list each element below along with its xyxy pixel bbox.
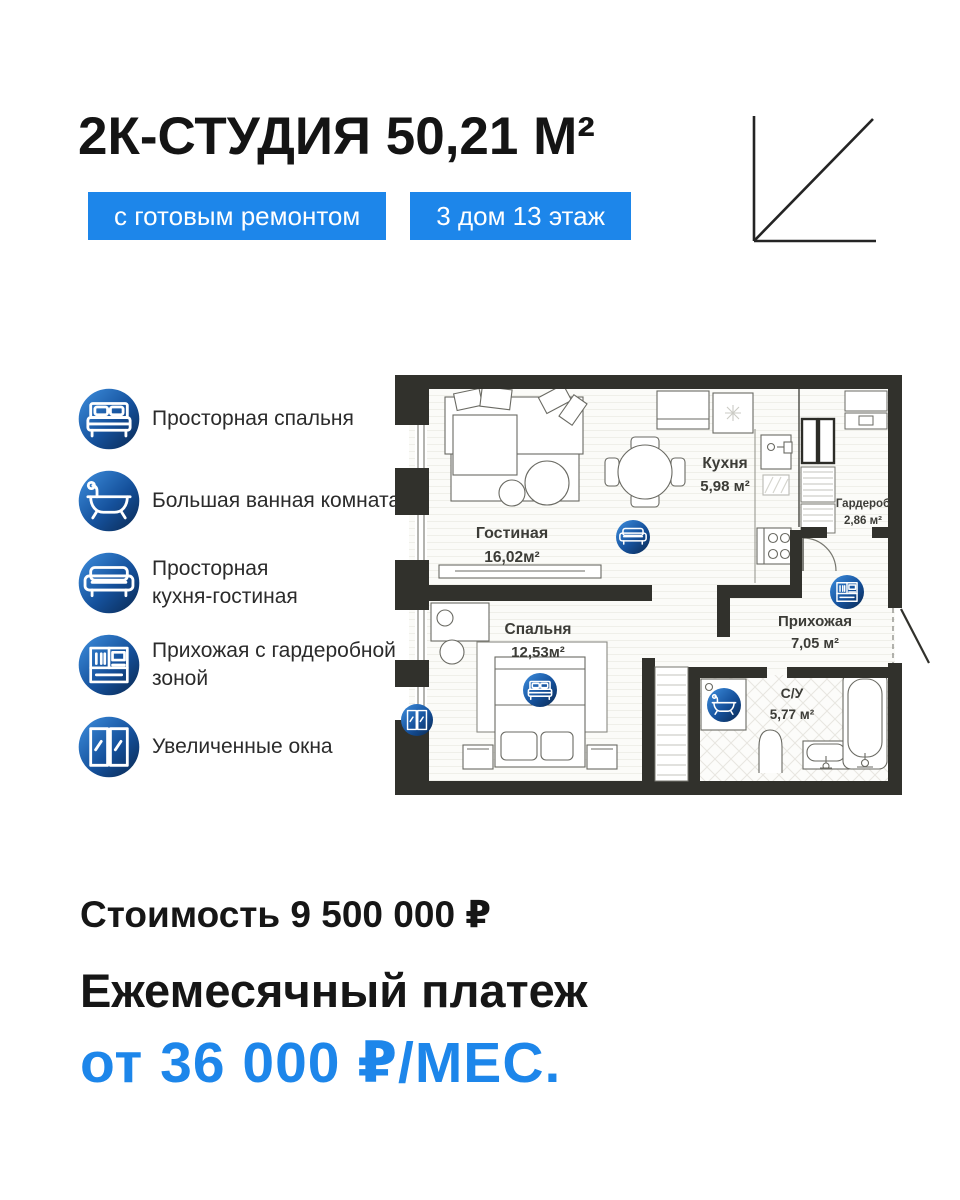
room-area-wardrobe: 2,86 м²	[844, 515, 882, 527]
wardrobe-icon	[78, 634, 140, 696]
bed-icon	[78, 388, 140, 450]
wardrobe-icon	[830, 575, 864, 609]
window-icon	[401, 704, 433, 736]
room-area-hallway: 7,05 м²	[791, 636, 839, 652]
bathtub-icon	[707, 688, 741, 722]
room-label-living: Гостиная	[476, 525, 548, 542]
real-estate-poster: 2К-СТУДИЯ 50,21 М² с готовым ремонтом 3 …	[0, 0, 960, 1200]
room-label-bathroom: С/У	[781, 685, 804, 701]
room-label-hallway: Прихожая	[778, 613, 852, 630]
window-icon	[78, 716, 140, 778]
room-area-bedroom: 12,53м²	[511, 644, 565, 661]
feature-label: Просторная спальня	[152, 405, 354, 433]
feature-bedroom: Просторная спальня	[78, 388, 408, 450]
room-area-bathroom: 5,77 м²	[770, 707, 815, 722]
developer-logo	[746, 110, 880, 253]
bathtub-icon	[78, 470, 140, 532]
total-price: Стоимость 9 500 000 ₽	[80, 893, 587, 936]
monthly-payment-value: от 36 000 ₽/МЕС.	[80, 1030, 587, 1096]
page-title: 2К-СТУДИЯ 50,21 М²	[78, 106, 595, 167]
feature-list: Просторная спальня Большая ванная комнат…	[78, 388, 408, 798]
entrance-door	[893, 608, 929, 663]
pricing-block: Стоимость 9 500 000 ₽ Ежемесячный платеж…	[80, 893, 587, 1096]
corner-lines-logo-icon	[746, 110, 880, 248]
room-area-living: 16,02м²	[484, 549, 539, 566]
room-label-bedroom: Спальня	[505, 621, 572, 638]
feature-label: Прихожая с гардеробной зоной	[152, 637, 396, 692]
feature-label: Большая ванная комната	[152, 487, 400, 515]
feature-hallway-wardrobe: Прихожая с гардеробной зоной	[78, 634, 408, 696]
badge-renovation: с готовым ремонтом	[88, 192, 386, 240]
monthly-payment-label: Ежемесячный платеж	[80, 963, 587, 1018]
feature-windows: Увеличенные окна	[78, 716, 408, 778]
room-label-kitchen: Кухня	[702, 455, 747, 472]
bed-icon	[523, 673, 557, 707]
floor-plan-drawing: Гостиная 16,02м² Кухня 5,98 м² Гардероб …	[395, 375, 935, 795]
feature-bathroom: Большая ванная комната	[78, 470, 408, 532]
badge-house-floor: 3 дом 13 этаж	[410, 192, 631, 240]
sofa-icon	[616, 520, 650, 554]
room-area-kitchen: 5,98 м²	[700, 478, 749, 495]
badge-row: с готовым ремонтом 3 дом 13 этаж	[88, 192, 631, 240]
floor-plan: Гостиная 16,02м² Кухня 5,98 м² Гардероб …	[395, 375, 935, 800]
feature-label: Увеличенные окна	[152, 733, 333, 761]
sofa-icon	[78, 552, 140, 614]
room-label-wardrobe: Гардероб	[836, 498, 890, 510]
feature-kitchen-living: Просторная кухня-гостиная	[78, 552, 408, 614]
feature-label: Просторная кухня-гостиная	[152, 555, 298, 610]
